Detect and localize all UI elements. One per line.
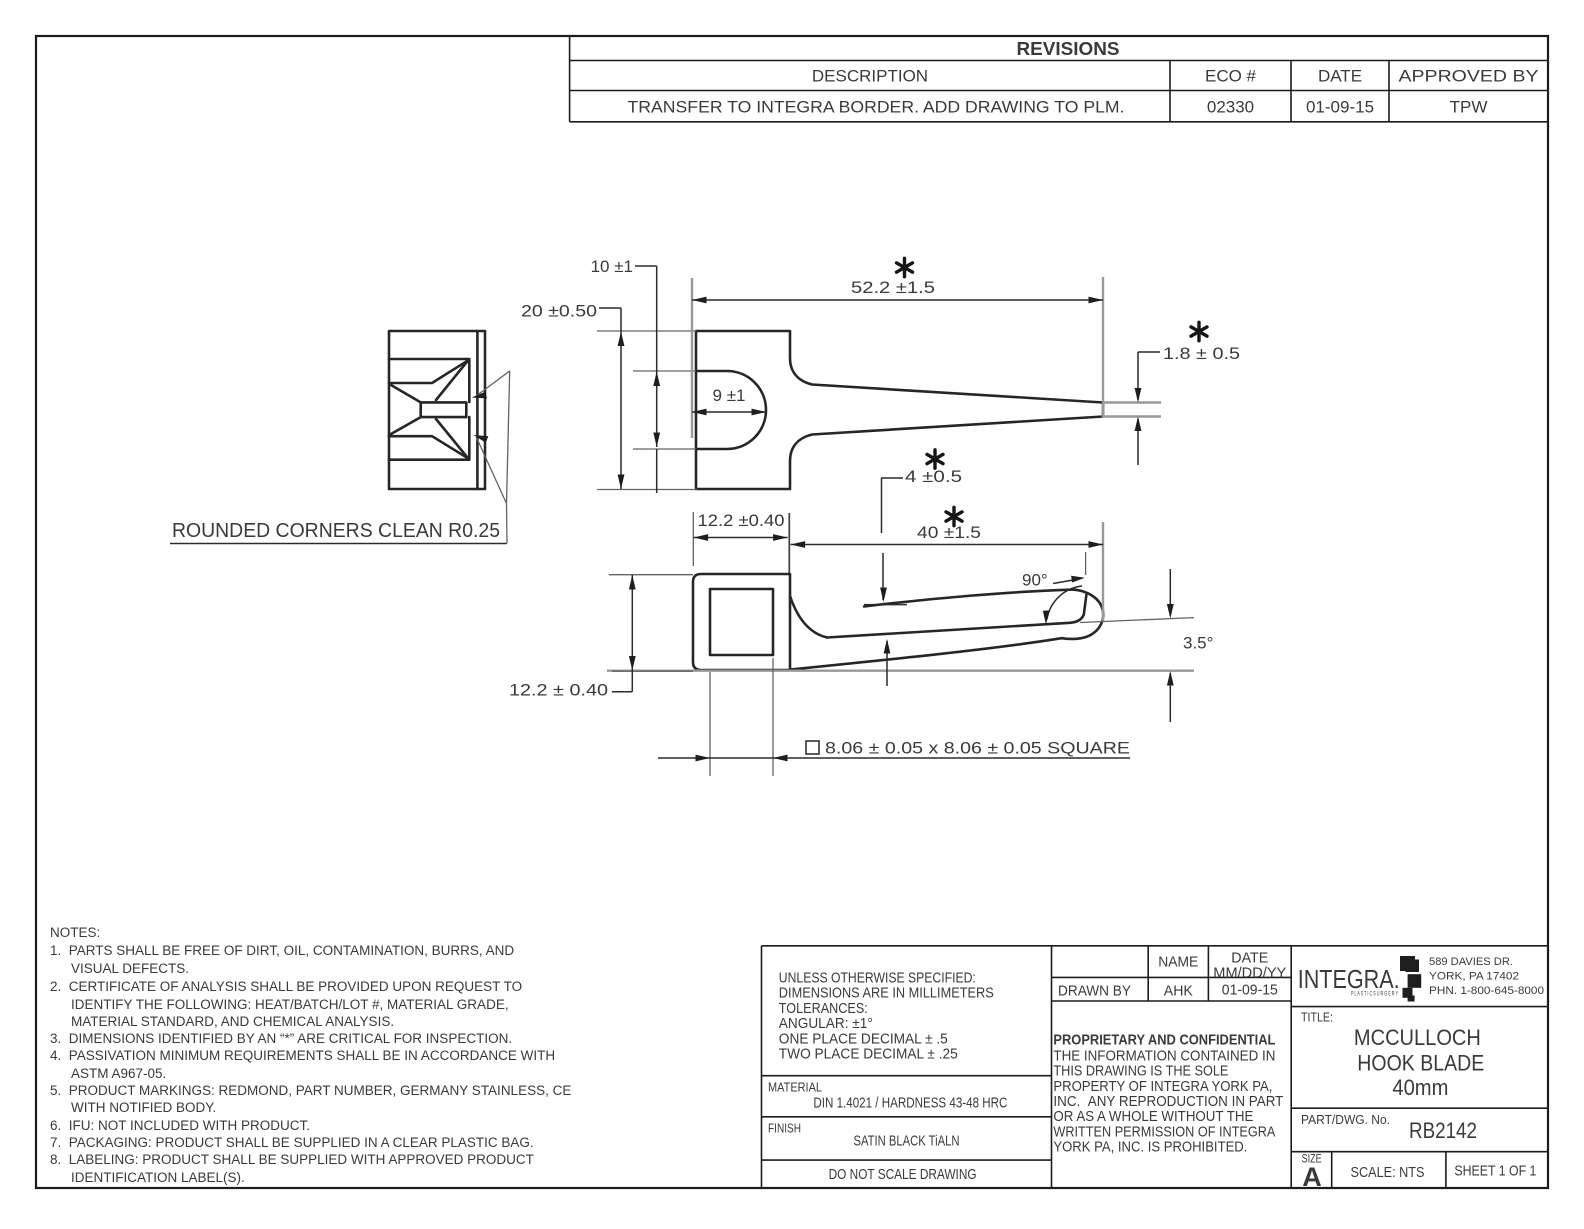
svg-text:REVISIONS: REVISIONS	[1017, 39, 1120, 59]
svg-text:12.2 ± 0.40: 12.2 ± 0.40	[509, 681, 608, 700]
svg-text:PART/DWG. No.: PART/DWG. No.	[1301, 1113, 1390, 1127]
svg-text:WITH NOTIFIED BODY.: WITH NOTIFIED BODY.	[71, 1100, 216, 1115]
svg-text:APPROVED BY: APPROVED BY	[1399, 67, 1539, 86]
svg-text:TRANSFER TO INTEGRA BORDER. AD: TRANSFER TO INTEGRA BORDER. ADD DRAWING …	[628, 98, 1125, 117]
svg-text:HOOK BLADE: HOOK BLADE	[1357, 1051, 1484, 1076]
svg-text:52.2 ±1.5: 52.2 ±1.5	[851, 278, 935, 297]
svg-text:TWO PLACE DECIMAL ± .25: TWO PLACE DECIMAL ± .25	[779, 1046, 958, 1063]
svg-text:3.5°: 3.5°	[1183, 634, 1213, 653]
svg-text:MM/DD/YY: MM/DD/YY	[1213, 965, 1286, 982]
svg-text:10 ±1: 10 ±1	[591, 257, 633, 276]
svg-text:01-09-15: 01-09-15	[1306, 98, 1374, 117]
svg-text:NAME: NAME	[1158, 954, 1198, 971]
svg-text:DIN 1.4021 / HARDNESS 43-48 HR: DIN 1.4021 / HARDNESS 43-48 HRC	[813, 1095, 1007, 1112]
svg-text:DO NOT SCALE DRAWING: DO NOT SCALE DRAWING	[829, 1166, 977, 1183]
svg-text:TPW: TPW	[1450, 98, 1488, 117]
svg-text:6. IFU: NOT INCLUDED WITH PRO: 6. IFU: NOT INCLUDED WITH PRODUCT.	[50, 1118, 310, 1133]
svg-text:90°: 90°	[1022, 571, 1048, 590]
svg-text:AHK: AHK	[1164, 983, 1193, 1000]
svg-text:589 DAVIES DR.: 589 DAVIES DR.	[1429, 956, 1513, 968]
svg-text:YORK PA, INC. IS PROHIBITED.: YORK PA, INC. IS PROHIBITED.	[1053, 1138, 1247, 1155]
svg-text:YORK, PA 17402: YORK, PA 17402	[1429, 971, 1519, 983]
svg-text:8. LABELING: PRODUCT SHALL BE: 8. LABELING: PRODUCT SHALL BE SUPPLIED W…	[50, 1152, 534, 1167]
svg-text:MATERIAL: MATERIAL	[768, 1080, 822, 1095]
svg-text:P L A S T I C S U R G E R Y: P L A S T I C S U R G E R Y	[1351, 992, 1398, 998]
svg-text:ECO #: ECO #	[1205, 67, 1257, 86]
svg-text:SATIN BLACK TiALN: SATIN BLACK TiALN	[854, 1133, 960, 1150]
svg-text:DRAWN BY: DRAWN BY	[1058, 983, 1131, 1000]
svg-text:12.2 ±0.40: 12.2 ±0.40	[698, 511, 785, 530]
svg-text:5. PRODUCT MARKINGS: REDMOND,: 5. PRODUCT MARKINGS: REDMOND, PART NUMBE…	[50, 1083, 571, 1098]
svg-text:DATE: DATE	[1318, 67, 1362, 86]
svg-text:MCCULLOCH: MCCULLOCH	[1354, 1025, 1481, 1050]
svg-text:1.8 ± 0.5: 1.8 ± 0.5	[1163, 344, 1240, 363]
svg-text:4 ±0.5: 4 ±0.5	[905, 467, 962, 486]
svg-text:INTEGRA.: INTEGRA.	[1298, 964, 1400, 994]
svg-text:IDENTIFY THE FOLLOWING: HEAT/B: IDENTIFY THE FOLLOWING: HEAT/BATCH/LOT #…	[71, 997, 509, 1012]
svg-text:TITLE:: TITLE:	[1301, 1009, 1333, 1024]
svg-text:ROUNDED CORNERS CLEAN R0.25: ROUNDED CORNERS CLEAN R0.25	[172, 520, 500, 542]
svg-text:40 ±1.5: 40 ±1.5	[917, 523, 981, 542]
svg-text:PHN. 1-800-645-8000: PHN. 1-800-645-8000	[1429, 985, 1544, 997]
svg-text:MATERIAL STANDARD, AND CHEMICA: MATERIAL STANDARD, AND CHEMICAL ANALYSIS…	[71, 1014, 394, 1029]
svg-text:VISUAL DEFECTS.: VISUAL DEFECTS.	[71, 961, 189, 976]
svg-text:ASTM A967-05.: ASTM A967-05.	[71, 1066, 166, 1081]
svg-text:8.06 ± 0.05 x 8.06 ± 0.05 SQUA: 8.06 ± 0.05 x 8.06 ± 0.05 SQUARE	[825, 739, 1130, 758]
svg-text:SCALE: NTS: SCALE: NTS	[1351, 1164, 1425, 1181]
svg-text:4. PASSIVATION MINIMUM REQUIR: 4. PASSIVATION MINIMUM REQUIREMENTS SHAL…	[50, 1048, 555, 1063]
svg-text:9 ±1: 9 ±1	[713, 386, 746, 405]
svg-text:IDENTIFICATION LABEL(S).: IDENTIFICATION LABEL(S).	[71, 1170, 245, 1185]
svg-text:A: A	[1302, 1162, 1322, 1192]
svg-text:40mm: 40mm	[1392, 1075, 1448, 1100]
svg-text:02330: 02330	[1207, 98, 1254, 117]
svg-text:2. CERTIFICATE OF ANALYSIS SH: 2. CERTIFICATE OF ANALYSIS SHALL BE PROV…	[50, 979, 522, 994]
svg-text:01-09-15: 01-09-15	[1222, 982, 1278, 999]
svg-text:FINISH: FINISH	[768, 1121, 801, 1136]
svg-text:1. PARTS SHALL BE FREE OF DIR: 1. PARTS SHALL BE FREE OF DIRT, OIL, CON…	[50, 943, 514, 958]
svg-text:SHEET 1 OF 1: SHEET 1 OF 1	[1454, 1163, 1536, 1180]
svg-text:7. PACKAGING: PRODUCT SHALL: 7. PACKAGING: PRODUCT SHALL BE SUPPLIED …	[50, 1135, 534, 1150]
svg-text:RB2142: RB2142	[1409, 1118, 1477, 1143]
svg-text:NOTES:: NOTES:	[50, 925, 100, 940]
svg-text:20 ±0.50: 20 ±0.50	[521, 302, 597, 321]
svg-text:3. DIMENSIONS IDENTIFIED BY A: 3. DIMENSIONS IDENTIFIED BY AN “*” ARE C…	[50, 1031, 512, 1046]
svg-text:DESCRIPTION: DESCRIPTION	[812, 67, 928, 86]
svg-text:PROPRIETARY AND CONFIDENTIAL: PROPRIETARY AND CONFIDENTIAL	[1053, 1031, 1275, 1048]
